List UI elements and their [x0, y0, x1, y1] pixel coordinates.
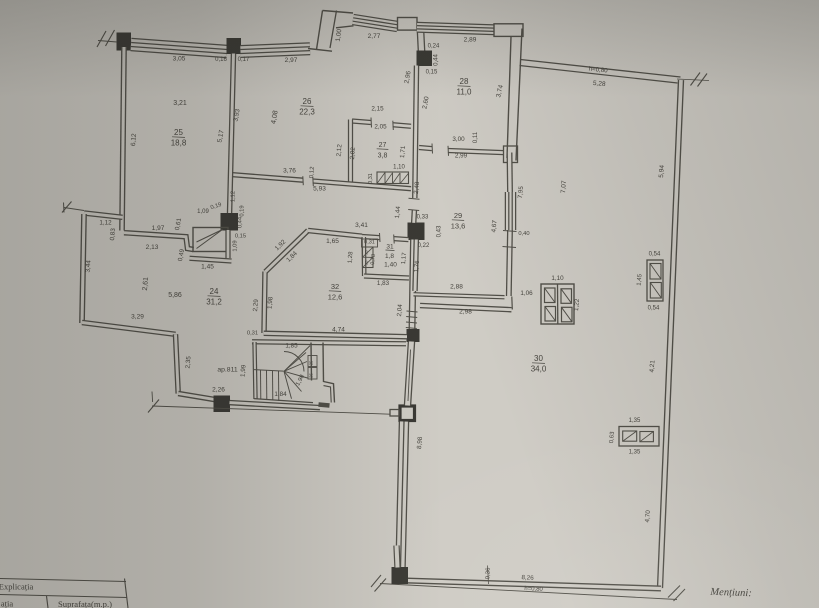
svg-text:1,40: 1,40 [384, 262, 397, 269]
svg-text:0,61: 0,61 [174, 217, 183, 231]
svg-text:0,31: 0,31 [368, 173, 374, 184]
svg-text:1,44: 1,44 [394, 205, 402, 218]
svg-text:0,31: 0,31 [247, 331, 258, 337]
svg-text:1,12: 1,12 [99, 220, 112, 227]
svg-text:2,77: 2,77 [368, 33, 381, 40]
svg-text:0,11: 0,11 [473, 131, 479, 143]
svg-text:ația: ația [1, 599, 13, 608]
svg-text:1,71: 1,71 [399, 145, 407, 158]
svg-text:2,35: 2,35 [184, 355, 192, 368]
svg-text:0,44: 0,44 [434, 54, 440, 66]
svg-text:1,83: 1,83 [377, 280, 390, 287]
svg-text:0,12: 0,12 [309, 166, 316, 179]
svg-text:0,54: 0,54 [648, 306, 660, 312]
svg-text:2,48: 2,48 [413, 181, 421, 194]
svg-text:1,45: 1,45 [201, 264, 214, 271]
svg-text:0,54: 0,54 [649, 252, 661, 258]
svg-text:h=0,80: h=0,80 [524, 586, 543, 593]
svg-text:ap.811: ap.811 [217, 367, 238, 374]
svg-text:4,08: 4,08 [270, 110, 279, 125]
svg-text:0,15: 0,15 [235, 234, 246, 240]
svg-text:0,19: 0,19 [240, 205, 246, 216]
svg-text:7,07: 7,07 [560, 180, 568, 193]
svg-text:Suprafața(m.p.): Suprafața(m.p.) [58, 599, 112, 608]
svg-text:2,96: 2,96 [403, 70, 412, 84]
svg-text:0,40: 0,40 [518, 231, 529, 237]
svg-text:1,97: 1,97 [152, 225, 165, 232]
svg-text:25: 25 [364, 250, 369, 255]
svg-text:0,31: 0,31 [364, 240, 375, 246]
svg-text:0,78: 0,78 [370, 254, 377, 265]
svg-text:1,28: 1,28 [348, 251, 355, 264]
svg-text:1,09: 1,09 [197, 209, 209, 215]
svg-text:31,2: 31,2 [206, 298, 222, 307]
svg-text:1,17: 1,17 [401, 252, 408, 265]
svg-text:3,8: 3,8 [378, 153, 388, 160]
svg-text:2,12: 2,12 [335, 143, 343, 156]
svg-text:25: 25 [174, 128, 183, 137]
svg-text:4,74: 4,74 [332, 327, 345, 334]
svg-text:6,12: 6,12 [130, 133, 138, 147]
svg-text:2,97: 2,97 [285, 57, 298, 64]
svg-text:2,13: 2,13 [146, 244, 159, 251]
svg-text:5,93: 5,93 [313, 186, 326, 193]
svg-text:2,02: 2,02 [349, 146, 357, 159]
svg-text:0,83: 0,83 [109, 227, 117, 240]
svg-text:27: 27 [379, 142, 387, 149]
svg-text:1,00: 1,00 [335, 28, 344, 42]
svg-text:1,65: 1,65 [326, 238, 339, 245]
svg-text:5,94: 5,94 [658, 164, 666, 177]
svg-text:1,76: 1,76 [414, 260, 421, 273]
svg-text:3,21: 3,21 [173, 100, 187, 107]
svg-text:1,10: 1,10 [393, 165, 405, 171]
svg-text:2,61: 2,61 [142, 277, 150, 291]
svg-text:0,22: 0,22 [418, 243, 430, 249]
svg-text:1,85: 1,85 [285, 343, 298, 350]
svg-text:Mențiuni:: Mențiuni: [709, 587, 752, 599]
svg-text:2,29: 2,29 [252, 298, 260, 311]
svg-text:0,15: 0,15 [426, 70, 438, 76]
svg-text:4,21: 4,21 [648, 359, 656, 372]
svg-text:0,63: 0,63 [609, 431, 616, 444]
svg-text:0,17: 0,17 [238, 57, 250, 63]
svg-text:0,16: 0,16 [215, 57, 227, 63]
svg-text:2,99: 2,99 [455, 153, 468, 160]
svg-text:8,26: 8,26 [521, 574, 534, 582]
svg-text:2,60: 2,60 [421, 96, 430, 110]
svg-text:34,0: 34,0 [531, 365, 547, 374]
svg-text:32: 32 [331, 282, 339, 291]
svg-text:0,36: 0,36 [485, 567, 492, 580]
svg-text:5,28: 5,28 [592, 80, 606, 88]
svg-text:2,89: 2,89 [464, 37, 477, 44]
svg-text:1,35: 1,35 [629, 450, 641, 456]
svg-text:0,49: 0,49 [177, 248, 186, 262]
svg-text:1,10: 1,10 [551, 275, 564, 282]
svg-text:4,67: 4,67 [490, 219, 498, 232]
svg-text:28: 28 [460, 77, 469, 86]
svg-text:2,05: 2,05 [374, 124, 387, 131]
svg-text:24: 24 [210, 287, 219, 296]
svg-text:13,6: 13,6 [451, 222, 466, 231]
svg-text:2,88: 2,88 [450, 284, 463, 291]
svg-text:1,35: 1,35 [629, 418, 641, 424]
svg-text:1,45: 1,45 [637, 273, 644, 286]
svg-text:3,00: 3,00 [452, 136, 465, 143]
svg-text:2,04: 2,04 [396, 303, 404, 316]
svg-text:26: 26 [303, 97, 312, 106]
svg-text:1,22: 1,22 [573, 298, 581, 311]
svg-text:Explicația: Explicația [0, 582, 33, 592]
svg-text:3,74: 3,74 [495, 84, 505, 98]
svg-text:2,15: 2,15 [371, 106, 384, 113]
svg-text:4,70: 4,70 [644, 509, 652, 522]
svg-text:3,05: 3,05 [173, 56, 186, 63]
svg-text:1,8: 1,8 [385, 253, 394, 260]
svg-text:3,76: 3,76 [283, 168, 296, 175]
svg-text:2,26: 2,26 [212, 387, 225, 394]
svg-text:3,93: 3,93 [232, 108, 241, 122]
svg-text:30: 30 [534, 354, 543, 363]
svg-text:0,24: 0,24 [428, 44, 440, 50]
svg-text:0,19: 0,19 [210, 202, 223, 211]
svg-text:1,99: 1,99 [239, 364, 247, 377]
svg-text:2,98: 2,98 [459, 309, 472, 316]
svg-text:0,43: 0,43 [437, 225, 443, 237]
svg-text:5,17: 5,17 [216, 129, 225, 143]
svg-text:0,33: 0,33 [417, 215, 429, 221]
svg-text:1,84: 1,84 [274, 391, 287, 398]
svg-text:22,3: 22,3 [299, 108, 315, 117]
svg-text:1,12: 1,12 [231, 191, 237, 202]
svg-text:29: 29 [454, 211, 462, 220]
svg-text:8,98: 8,98 [416, 436, 424, 449]
svg-text:25: 25 [309, 373, 314, 378]
svg-text:7,95: 7,95 [517, 185, 525, 198]
svg-text:12,6: 12,6 [328, 293, 343, 302]
svg-text:11,0: 11,0 [457, 88, 473, 97]
svg-text:5,86: 5,86 [168, 292, 182, 299]
svg-text:25: 25 [364, 260, 369, 265]
svg-text:0,44: 0,44 [238, 216, 244, 228]
svg-text:1,06: 1,06 [520, 290, 533, 297]
svg-text:1,98: 1,98 [266, 296, 274, 309]
svg-text:18,8: 18,8 [171, 139, 187, 148]
svg-text:3,44: 3,44 [84, 259, 92, 272]
svg-text:3,41: 3,41 [355, 222, 368, 229]
svg-text:25: 25 [309, 360, 314, 365]
svg-text:1,09: 1,09 [233, 240, 239, 251]
svg-text:3,29: 3,29 [131, 314, 144, 321]
svg-text:31: 31 [386, 244, 394, 251]
